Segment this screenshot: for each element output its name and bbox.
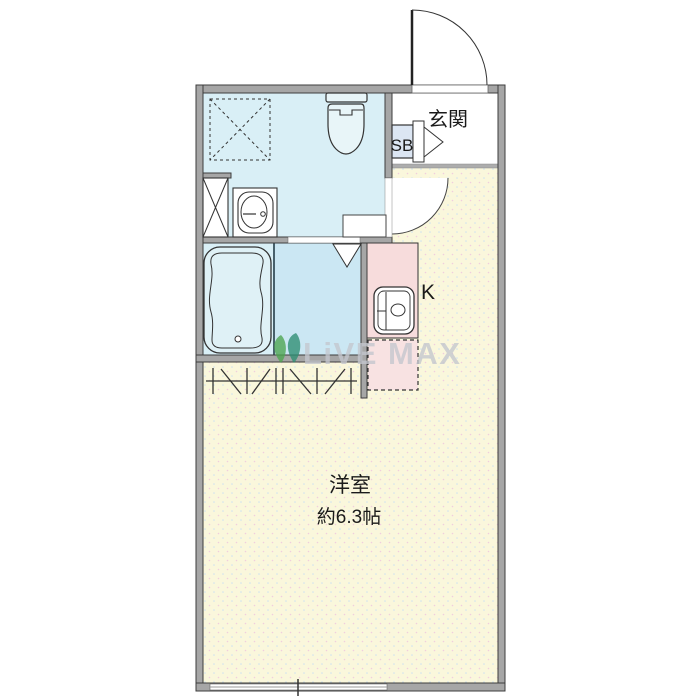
bath-door-opening <box>288 237 360 243</box>
entrance-step-edge <box>392 164 498 168</box>
washing-machine-pan <box>203 178 228 237</box>
entry-door-swing <box>412 10 488 93</box>
shoe-box-label: SB <box>391 136 414 155</box>
entrance-label: 玄関 <box>428 108 468 131</box>
wall-left <box>196 85 203 691</box>
bath-folding-door <box>343 215 386 237</box>
wall-niche-stub <box>203 173 231 178</box>
watermark: LiVE MAX <box>274 333 461 371</box>
watermark-text: LiVE MAX <box>303 336 461 371</box>
main-room-size-label: 約6.3帖 <box>317 506 381 528</box>
floor-plan: LiVE MAX 玄関 SB K 洋室 約6.3帖 <box>0 0 700 700</box>
wall-right <box>498 85 505 691</box>
wall-kitchen <box>361 243 367 398</box>
washbasin <box>233 188 277 237</box>
bathtub <box>204 247 271 353</box>
floor-plan-svg: LiVE MAX 玄関 SB K 洋室 約6.3帖 <box>0 0 700 700</box>
kitchen-label: K <box>421 281 435 304</box>
kitchen-sink <box>374 287 414 334</box>
main-room-label: 洋室 <box>329 474 371 497</box>
